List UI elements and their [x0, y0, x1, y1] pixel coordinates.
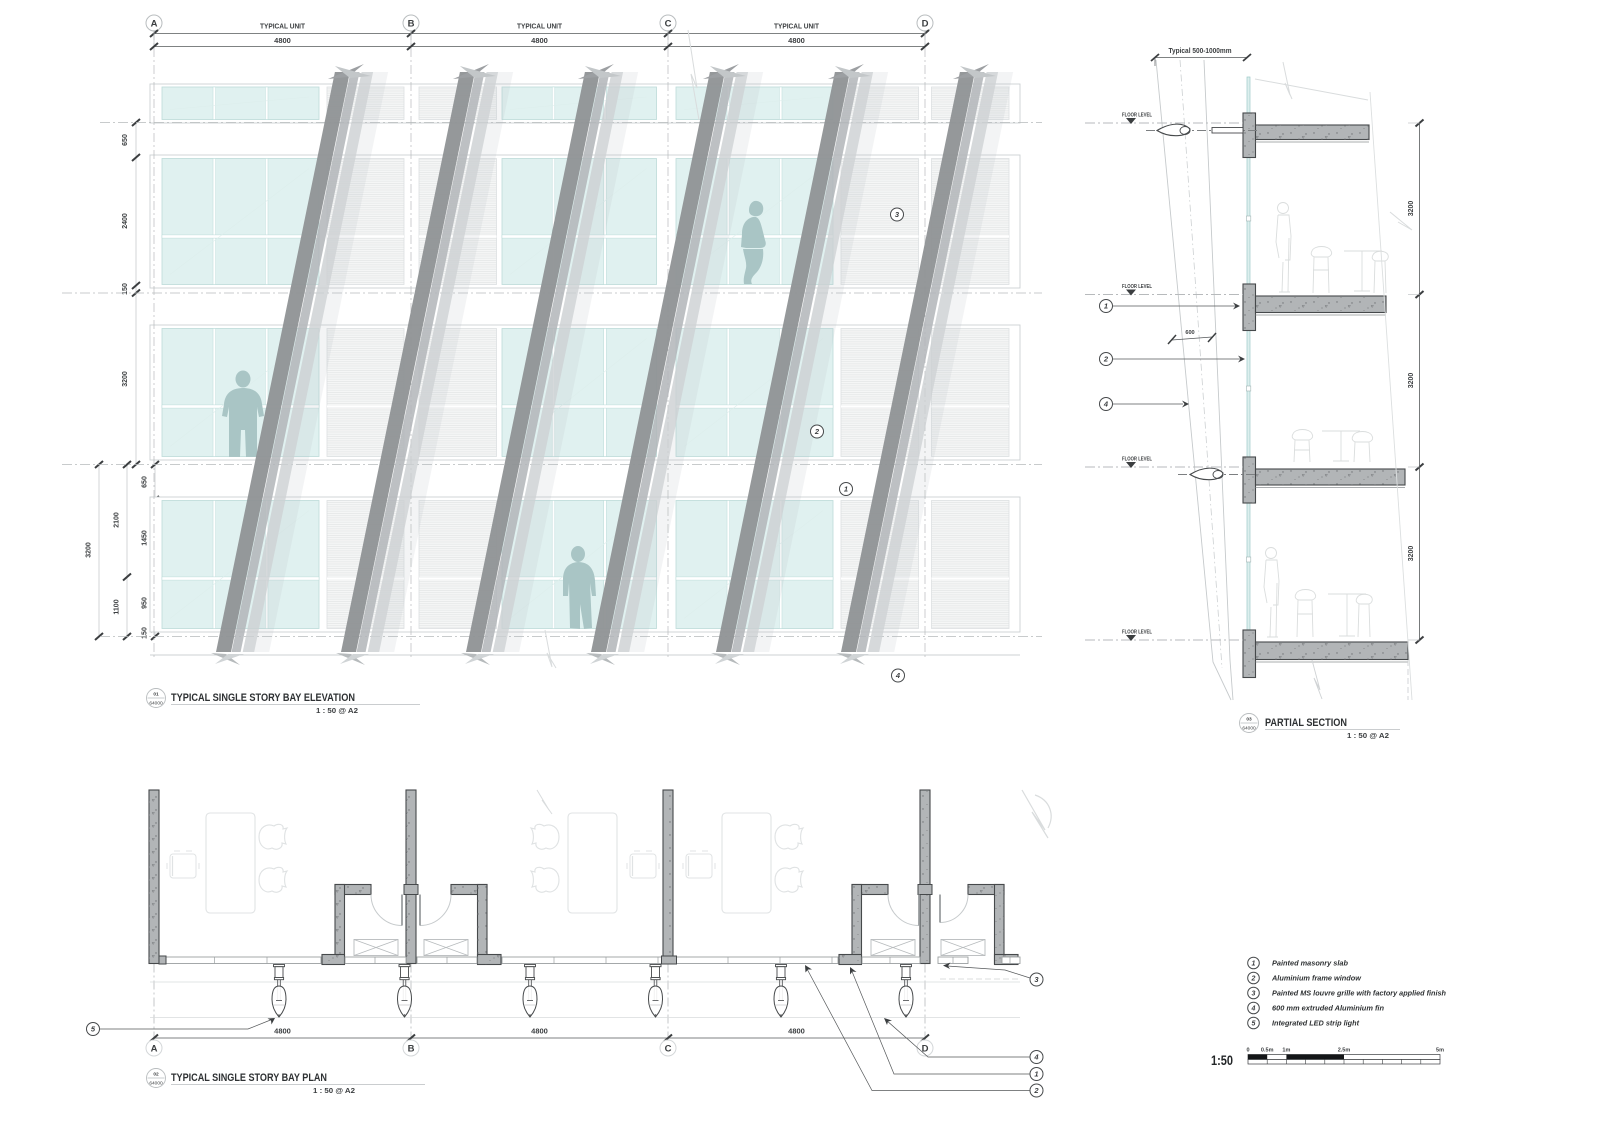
- svg-text:Painted MS louvre grille with: Painted MS louvre grille with factory ap…: [1272, 989, 1447, 998]
- svg-text:600 mm extruded Aluminium fin: 600 mm extruded Aluminium fin: [1272, 1004, 1385, 1013]
- svg-text:4: 4: [895, 671, 901, 680]
- svg-text:1 : 50 @ A2: 1 : 50 @ A2: [1347, 731, 1389, 740]
- svg-text:3200: 3200: [122, 371, 129, 387]
- svg-text:1100: 1100: [114, 599, 121, 614]
- svg-text:01: 01: [153, 692, 159, 698]
- svg-text:1m: 1m: [1282, 1048, 1290, 1054]
- svg-text:C: C: [665, 1044, 672, 1055]
- svg-text:5m: 5m: [1436, 1048, 1444, 1054]
- svg-text:0.5m: 0.5m: [1261, 1048, 1274, 1054]
- svg-text:4800: 4800: [531, 36, 548, 45]
- svg-text:A: A: [151, 1044, 158, 1055]
- svg-text:3: 3: [1252, 991, 1256, 998]
- svg-text:2: 2: [814, 427, 820, 436]
- svg-text:650: 650: [122, 134, 129, 146]
- svg-text:4: 4: [1033, 1053, 1039, 1062]
- svg-text:1: 1: [1104, 302, 1108, 311]
- svg-text:5: 5: [1252, 1021, 1256, 1028]
- svg-text:1 : 50 @ A2: 1 : 50 @ A2: [313, 1086, 355, 1095]
- svg-text:3200: 3200: [1408, 546, 1415, 562]
- svg-text:D: D: [922, 1044, 929, 1055]
- svg-text:2: 2: [1103, 355, 1109, 364]
- svg-text:B: B: [408, 1044, 415, 1055]
- svg-text:4800: 4800: [788, 36, 805, 45]
- svg-text:FLOOR LEVEL: FLOOR LEVEL: [1122, 113, 1152, 119]
- svg-text:TYPICAL UNIT: TYPICAL UNIT: [260, 22, 305, 31]
- svg-text:FLOOR LEVEL: FLOOR LEVEL: [1122, 457, 1152, 463]
- svg-text:600: 600: [1185, 330, 1194, 336]
- svg-text:0: 0: [1246, 1048, 1249, 1054]
- svg-text:Painted masonry slab: Painted masonry slab: [1272, 959, 1349, 968]
- svg-text:1 : 50 @ A2: 1 : 50 @ A2: [316, 706, 358, 715]
- svg-text:1450: 1450: [142, 530, 149, 546]
- svg-text:2400: 2400: [122, 213, 129, 229]
- svg-text:2: 2: [1033, 1086, 1039, 1095]
- svg-text:Aluminium frame window: Aluminium frame window: [1271, 974, 1361, 983]
- svg-text:Integrated LED strip light: Integrated LED strip light: [1272, 1019, 1360, 1028]
- svg-text:02: 02: [153, 1072, 159, 1078]
- svg-text:4: 4: [1103, 400, 1109, 409]
- svg-text:4800: 4800: [274, 1027, 291, 1036]
- svg-text:64000: 64000: [149, 701, 163, 707]
- svg-text:1:50: 1:50: [1211, 1053, 1233, 1068]
- svg-text:1: 1: [1034, 1070, 1038, 1079]
- svg-text:64000: 64000: [149, 1081, 163, 1087]
- svg-text:950: 950: [142, 597, 149, 609]
- svg-text:650: 650: [142, 476, 149, 488]
- svg-text:D: D: [922, 19, 929, 30]
- svg-text:FLOOR LEVEL: FLOOR LEVEL: [1122, 630, 1152, 636]
- svg-text:TYPICAL SINGLE STORY BAY ELEVA: TYPICAL SINGLE STORY BAY ELEVATION: [171, 692, 355, 704]
- svg-text:FLOOR LEVEL: FLOOR LEVEL: [1122, 284, 1152, 290]
- svg-text:3200: 3200: [1408, 373, 1415, 389]
- svg-text:3200: 3200: [1408, 201, 1415, 217]
- svg-text:4800: 4800: [788, 1027, 805, 1036]
- svg-text:150: 150: [142, 627, 149, 639]
- svg-text:TYPICAL UNIT: TYPICAL UNIT: [517, 22, 562, 31]
- svg-text:2100: 2100: [114, 512, 121, 528]
- svg-text:1: 1: [844, 485, 848, 494]
- svg-text:4: 4: [1251, 1006, 1256, 1013]
- svg-text:PARTIAL SECTION: PARTIAL SECTION: [1265, 717, 1347, 729]
- svg-text:2: 2: [1251, 976, 1256, 983]
- svg-text:4800: 4800: [274, 36, 291, 45]
- svg-text:C: C: [665, 19, 672, 30]
- svg-text:3200: 3200: [86, 542, 93, 558]
- svg-text:TYPICAL SINGLE STORY BAY PLAN: TYPICAL SINGLE STORY BAY PLAN: [171, 1072, 327, 1084]
- svg-text:4800: 4800: [531, 1027, 548, 1036]
- svg-text:2.5m: 2.5m: [1338, 1048, 1351, 1054]
- svg-text:03: 03: [1246, 717, 1252, 723]
- svg-text:TYPICAL UNIT: TYPICAL UNIT: [774, 22, 819, 31]
- svg-text:64000: 64000: [1242, 726, 1256, 732]
- svg-text:B: B: [408, 19, 415, 30]
- svg-text:Typical 500-1000mm: Typical 500-1000mm: [1169, 48, 1232, 55]
- svg-text:1: 1: [1252, 961, 1256, 968]
- svg-text:A: A: [151, 19, 158, 30]
